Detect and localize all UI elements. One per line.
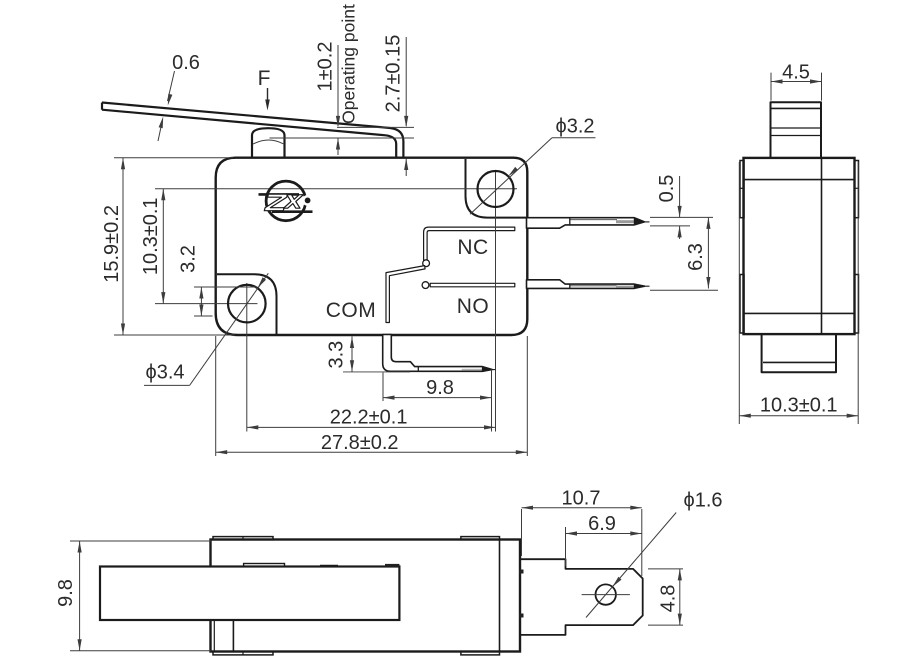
svg-text:4.5: 4.5 (782, 62, 810, 84)
svg-text:NO: NO (457, 295, 490, 318)
svg-text:ϕ3.4: ϕ3.4 (146, 362, 185, 384)
svg-text:COM: COM (326, 299, 377, 322)
svg-text:22.2±0.1: 22.2±0.1 (330, 407, 408, 429)
svg-text:6.3: 6.3 (685, 243, 707, 271)
svg-text:3.3: 3.3 (325, 341, 347, 369)
svg-text:4.8: 4.8 (658, 585, 680, 613)
svg-text:NC: NC (457, 236, 488, 259)
svg-text:2.7±0.15: 2.7±0.15 (383, 35, 405, 113)
svg-text:10.7: 10.7 (562, 488, 601, 510)
svg-text:0.6: 0.6 (172, 52, 200, 74)
svg-text:10.3±0.1: 10.3±0.1 (760, 395, 838, 417)
svg-text:ϕ3.2: ϕ3.2 (556, 116, 595, 138)
svg-text:ϕ1.6: ϕ1.6 (684, 490, 723, 512)
svg-text:0.5: 0.5 (656, 175, 678, 203)
svg-text:6.9: 6.9 (588, 513, 616, 535)
svg-text:9.8: 9.8 (55, 579, 77, 607)
svg-text:Operating point: Operating point (339, 4, 359, 124)
svg-text:15.9±0.2: 15.9±0.2 (101, 205, 123, 283)
svg-text:F: F (258, 67, 271, 90)
svg-text:9.8: 9.8 (426, 377, 454, 399)
svg-text:10.3±0.1: 10.3±0.1 (140, 197, 162, 275)
svg-text:1±0.2: 1±0.2 (315, 42, 337, 92)
svg-text:27.8±0.2: 27.8±0.2 (321, 432, 399, 454)
svg-text:3.2: 3.2 (178, 245, 200, 273)
